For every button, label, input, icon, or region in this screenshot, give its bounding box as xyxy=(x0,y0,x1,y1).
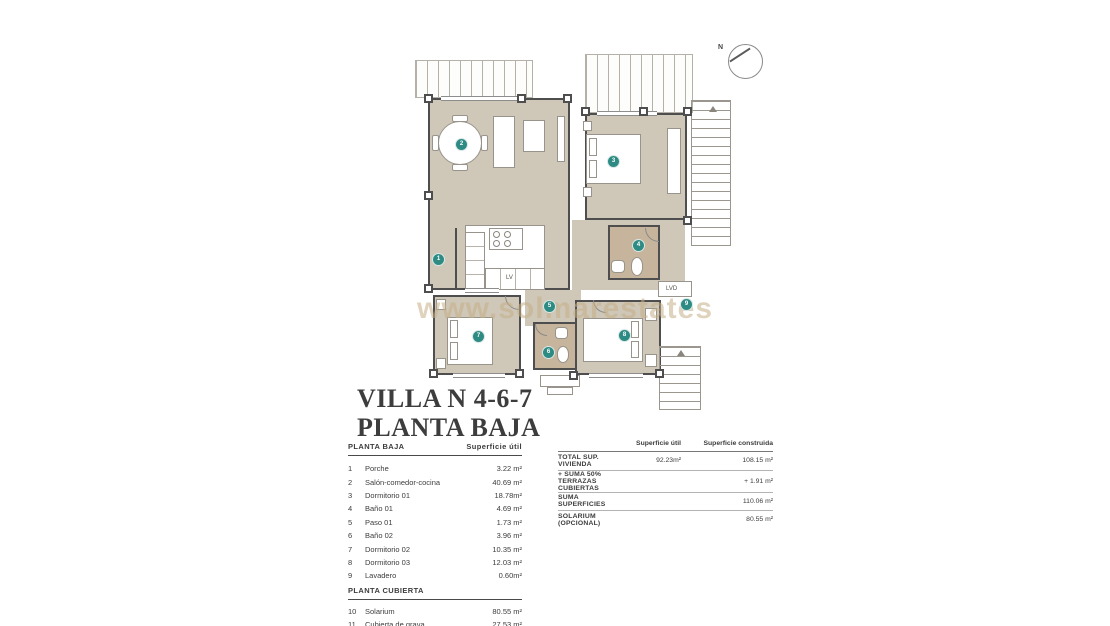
nightstand xyxy=(645,354,657,367)
window xyxy=(453,373,505,378)
stove-burner xyxy=(504,240,511,247)
dining-chair xyxy=(452,164,468,171)
wall-pillar xyxy=(581,107,590,116)
room-marker-dormitorio-03: 8 xyxy=(618,329,631,342)
wall-pillar xyxy=(429,369,438,378)
wall-pillar xyxy=(517,94,526,103)
pillow xyxy=(589,160,597,178)
row-name: Solarium xyxy=(365,607,492,616)
sink xyxy=(611,260,625,273)
stairs-arrow xyxy=(677,350,685,356)
watermark-text: www.solmarestates.com xyxy=(417,292,715,325)
table-row: 3Dormitorio 0118.78m² xyxy=(348,489,522,502)
wall-pillar xyxy=(424,191,433,200)
totals-col-construida: Superficie construida xyxy=(681,440,773,447)
table-row: 9Lavadero0.60m² xyxy=(348,569,522,582)
wall-pillar xyxy=(683,216,692,225)
dining-chair xyxy=(481,135,488,151)
stove-burner xyxy=(493,240,500,247)
compass-icon: N xyxy=(716,38,762,80)
pergola-slats-right xyxy=(585,54,693,113)
totals-label: + SUMA 50% TERRAZAS CUBIERTAS xyxy=(558,471,609,492)
stairs-arrow xyxy=(709,106,717,112)
wall-pillar xyxy=(569,371,578,380)
row-number: 11 xyxy=(348,620,365,626)
title-line-1: VILLA N 4-6-7 xyxy=(357,384,540,413)
pergola-slats-left xyxy=(415,60,533,98)
window xyxy=(597,111,657,116)
row-name: Porche xyxy=(365,464,497,473)
totals-construida-value: + 1.91 m² xyxy=(681,478,773,485)
row-number: 2 xyxy=(348,478,365,487)
row-number: 1 xyxy=(348,464,365,473)
row-value: 10.35 m² xyxy=(492,545,522,554)
totals-table-header: Superficie útil Superficie construida xyxy=(558,440,773,452)
row-name: Dormitorio 03 xyxy=(365,558,492,567)
row-name: Dormitorio 02 xyxy=(365,545,492,554)
row-value: 80.55 m² xyxy=(492,607,522,616)
table-row: 1Porche3.22 m² xyxy=(348,462,522,475)
row-number: 7 xyxy=(348,545,365,554)
pillow xyxy=(589,138,597,156)
totals-construida-value: 110.06 m² xyxy=(681,498,773,505)
table-row: 4Baño 014.69 m² xyxy=(348,502,522,515)
row-number: 8 xyxy=(348,558,365,567)
coffee-table xyxy=(523,120,545,152)
floor-plan: LVD LV xyxy=(405,36,777,426)
title-line-2: PLANTA BAJA xyxy=(357,413,540,442)
row-name: Dormitorio 01 xyxy=(365,491,494,500)
row-value: 4.69 m² xyxy=(497,504,522,513)
exterior-stairs-top xyxy=(691,100,731,246)
surface-table-title: PLANTA BAJA xyxy=(348,442,404,451)
row-value: 0.60m² xyxy=(499,571,522,580)
row-number: 9 xyxy=(348,571,365,580)
wall-pillar xyxy=(683,107,692,116)
stove-burner xyxy=(493,231,500,238)
toilet xyxy=(557,346,569,363)
entrance-step xyxy=(547,387,573,395)
row-number: 6 xyxy=(348,531,365,540)
row-value: 18.78m² xyxy=(494,491,522,500)
totals-construida-value: 80.55 m² xyxy=(681,516,773,523)
room-marker-dormitorio-02: 7 xyxy=(472,330,485,343)
row-value: 27.53 m² xyxy=(492,620,522,626)
table-row: 2Salón-comedor-cocina40.69 m² xyxy=(348,475,522,488)
totals-util-value: 92.23m² xyxy=(609,457,681,464)
room-marker-bano-02: 6 xyxy=(542,346,555,359)
table-row: 11Cubierta de grava27.53 m² xyxy=(348,618,522,626)
row-value: 40.69 m² xyxy=(492,478,522,487)
totals-construida-value: 108.15 m² xyxy=(681,457,773,464)
dining-chair xyxy=(452,115,468,122)
nightstand xyxy=(436,358,446,369)
totals-col-util: Superficie útil xyxy=(609,440,681,447)
room-marker-paso: 5 xyxy=(543,300,556,313)
nightstand xyxy=(583,187,592,197)
watermark-wrapper: www.solmarestates.com xyxy=(417,292,715,332)
tv-unit xyxy=(557,116,565,162)
table-row: 8Dormitorio 0312.03 m² xyxy=(348,556,522,569)
surface-table: PLANTA BAJA Superficie útil 1Porche3.22 … xyxy=(348,442,522,626)
wall-pillar xyxy=(563,94,572,103)
wall-pillar xyxy=(639,107,648,116)
totals-row: + SUMA 50% TERRAZAS CUBIERTAS+ 1.91 m² xyxy=(558,471,773,493)
page-title: VILLA N 4-6-7 PLANTA BAJA xyxy=(357,384,540,442)
pillow xyxy=(450,342,458,360)
row-name: Baño 01 xyxy=(365,504,497,513)
totals-label: SOLARIUM (OPCIONAL) xyxy=(558,513,609,527)
sofa xyxy=(493,116,515,168)
window xyxy=(589,373,643,378)
row-number: 3 xyxy=(348,491,365,500)
totals-row: TOTAL SUP. VIVIENDA92.23m²108.15 m² xyxy=(558,452,773,471)
row-name: Cubierta de grava xyxy=(365,620,492,626)
table-row: 6Baño 023.96 m² xyxy=(348,529,522,542)
row-value: 1.73 m² xyxy=(497,518,522,527)
porch-wall xyxy=(455,228,457,290)
table-row: 5Paso 011.73 m² xyxy=(348,516,522,529)
dining-chair xyxy=(432,135,439,151)
dishwasher-label: LV xyxy=(506,275,513,281)
row-number: 4 xyxy=(348,504,365,513)
table-row: 10Solarium80.55 m² xyxy=(348,605,522,618)
surface-table-col-util: Superficie útil xyxy=(466,442,522,451)
room-marker-salon: 2 xyxy=(455,138,468,151)
totals-row: SUMA SUPERFICIES110.06 m² xyxy=(558,493,773,512)
row-name: Paso 01 xyxy=(365,518,497,527)
wall-pillar xyxy=(424,94,433,103)
row-number: 5 xyxy=(348,518,365,527)
nightstand xyxy=(583,121,592,131)
room-marker-bano-01: 4 xyxy=(632,239,645,252)
table-row: 7Dormitorio 0210.35 m² xyxy=(348,542,522,555)
totals-table: Superficie útil Superficie construida TO… xyxy=(558,440,773,529)
surface-table-header: PLANTA BAJA Superficie útil xyxy=(348,442,522,456)
row-name: Lavadero xyxy=(365,571,499,580)
row-number: 10 xyxy=(348,607,365,616)
surface-table-section-header: PLANTA CUBIERTA xyxy=(348,583,522,600)
stove-burner xyxy=(504,231,511,238)
floor-plan-sheet: LVD LV xyxy=(0,0,1110,626)
wall-pillar xyxy=(515,369,524,378)
compass-north-label: N xyxy=(718,44,723,51)
pillow xyxy=(631,341,639,358)
totals-row: SOLARIUM (OPCIONAL)80.55 m² xyxy=(558,511,773,529)
room-marker-porche: 1 xyxy=(432,253,445,266)
kitchen-counter-left xyxy=(465,232,485,290)
row-name: Baño 02 xyxy=(365,531,497,540)
window xyxy=(441,96,521,101)
row-value: 3.22 m² xyxy=(497,464,522,473)
wardrobe xyxy=(667,128,681,194)
row-name: Salón-comedor-cocina xyxy=(365,478,492,487)
row-value: 3.96 m² xyxy=(497,531,522,540)
totals-label: SUMA SUPERFICIES xyxy=(558,494,609,508)
wall-pillar xyxy=(655,369,664,378)
totals-label: TOTAL SUP. VIVIENDA xyxy=(558,454,609,468)
room-marker-lavadero: 9 xyxy=(680,298,693,311)
kitchen-counter-bottom xyxy=(485,268,545,290)
room-marker-dormitorio-01: 3 xyxy=(607,155,620,168)
row-value: 12.03 m² xyxy=(492,558,522,567)
toilet xyxy=(631,257,643,276)
